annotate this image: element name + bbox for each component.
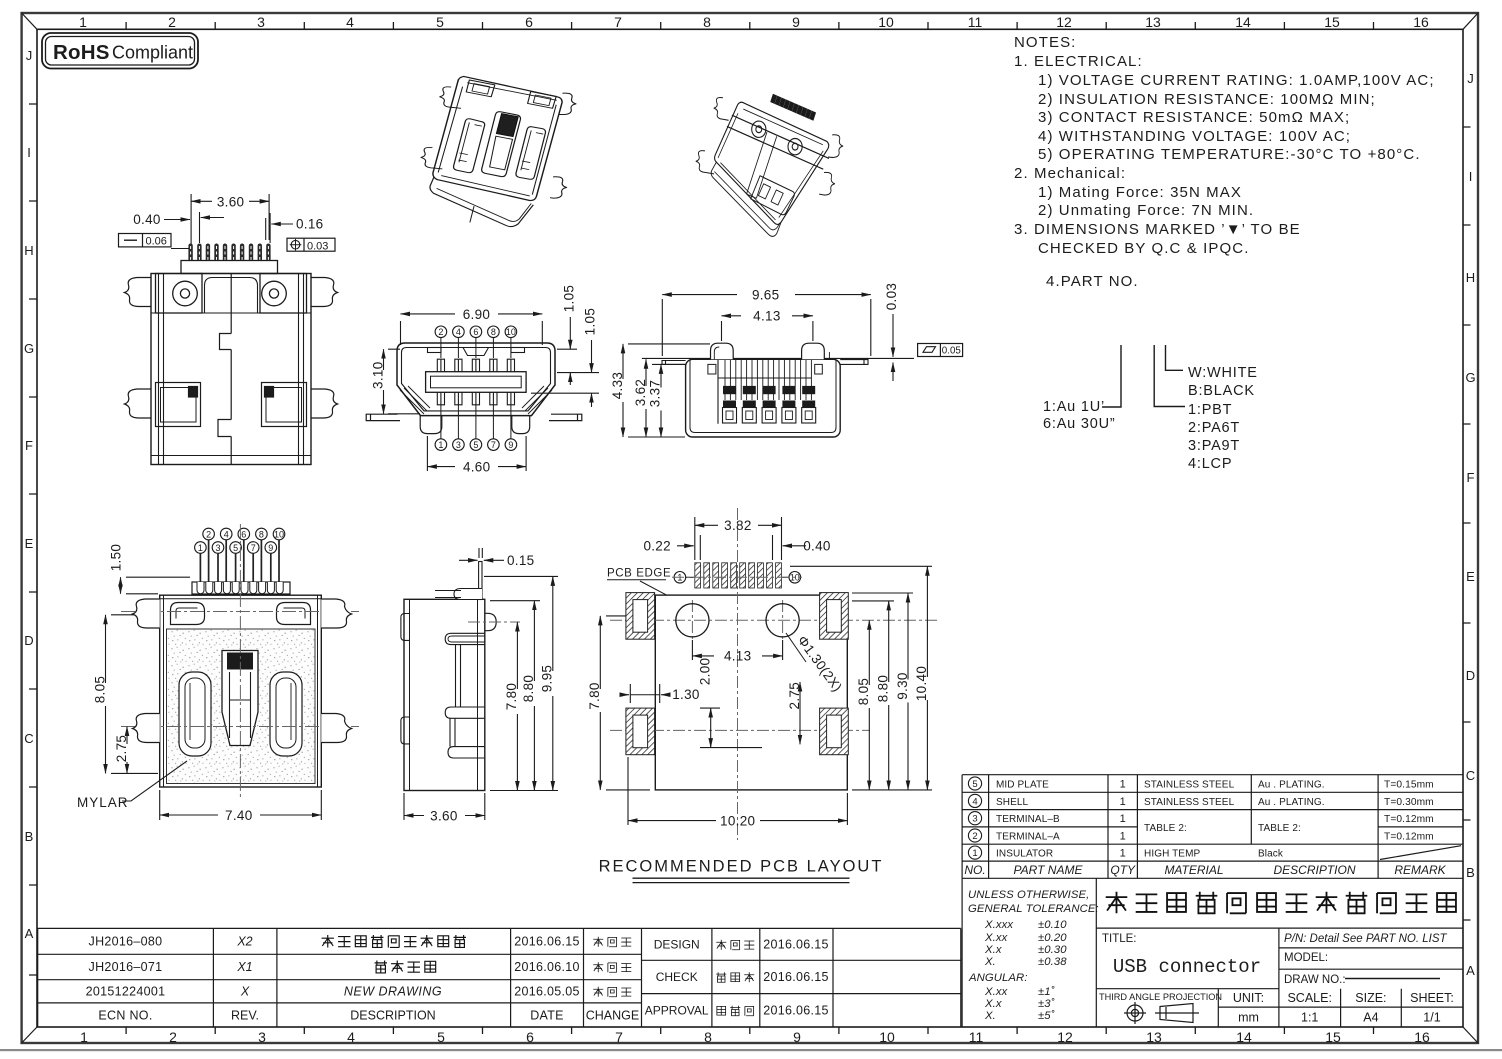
svg-text:F: F: [1467, 470, 1475, 485]
svg-text:X.: X.: [984, 956, 996, 968]
svg-text:11: 11: [968, 14, 983, 30]
svg-text:7: 7: [251, 543, 256, 553]
svg-text:14: 14: [1236, 1029, 1252, 1045]
svg-text:3.37: 3.37: [648, 380, 663, 407]
svg-text:SHELL: SHELL: [996, 797, 1029, 808]
svg-text:CHECKED BY Q.C & IPQC.: CHECKED BY Q.C & IPQC.: [1038, 240, 1249, 257]
svg-text:±0.30: ±0.30: [1038, 944, 1067, 956]
svg-text:MODEL:: MODEL:: [1284, 952, 1328, 964]
svg-text:JH2016–071: JH2016–071: [89, 960, 163, 974]
svg-text:16: 16: [1414, 1029, 1430, 1045]
svg-text:8: 8: [704, 1029, 712, 1045]
svg-text:1: 1: [1120, 848, 1126, 860]
svg-text:1: 1: [79, 14, 87, 30]
svg-text:15: 15: [1324, 14, 1340, 30]
svg-text:1: 1: [198, 543, 203, 553]
svg-text:5: 5: [437, 1029, 445, 1045]
svg-text:MATERIAL: MATERIAL: [1164, 863, 1223, 877]
svg-text:4.PART NO.: 4.PART NO.: [1046, 273, 1139, 290]
svg-text:±0.38: ±0.38: [1038, 956, 1067, 968]
svg-text:6: 6: [473, 327, 478, 337]
svg-text:5) OPERATING TEMPERATURE:-30°C: 5) OPERATING TEMPERATURE:-30°C TO +80°C.: [1038, 146, 1421, 163]
svg-text:A4: A4: [1363, 1011, 1378, 1025]
svg-text:0.03: 0.03: [884, 283, 899, 310]
svg-text:DRAW NO.:: DRAW NO.:: [1284, 974, 1346, 986]
svg-text:1/1: 1/1: [1423, 1011, 1440, 1025]
svg-text:J: J: [1467, 71, 1474, 86]
svg-text:2.00: 2.00: [698, 658, 713, 685]
svg-text:RoHS: RoHS: [53, 41, 110, 64]
svg-text:3: 3: [258, 1029, 266, 1045]
svg-text:I: I: [1469, 169, 1473, 184]
svg-text:±5˚: ±5˚: [1038, 1010, 1055, 1022]
svg-text:X2: X2: [236, 935, 252, 949]
svg-text:8: 8: [703, 14, 711, 30]
svg-text:F: F: [25, 438, 33, 453]
svg-text:T=0.12mm: T=0.12mm: [1384, 814, 1434, 825]
svg-text:1: 1: [1120, 813, 1126, 825]
svg-text:A: A: [1466, 963, 1475, 978]
svg-text:3:PA9T: 3:PA9T: [1188, 438, 1240, 454]
svg-text:10: 10: [878, 14, 894, 30]
svg-text:X.xx: X.xx: [984, 932, 1008, 944]
svg-text:SIZE:: SIZE:: [1355, 991, 1386, 1005]
svg-text:0.15: 0.15: [507, 553, 534, 568]
svg-text:X.xx: X.xx: [984, 986, 1008, 998]
svg-text:7: 7: [614, 14, 622, 30]
svg-text:A: A: [25, 926, 34, 941]
svg-text:USB connector: USB connector: [1113, 956, 1261, 978]
svg-text:Au . PLATING.: Au . PLATING.: [1258, 780, 1325, 791]
svg-text:J: J: [26, 48, 33, 63]
svg-text:4) WITHSTANDING VOLTAGE: 100V: 4) WITHSTANDING VOLTAGE: 100V AC;: [1038, 128, 1351, 145]
svg-text:2: 2: [206, 529, 211, 539]
svg-text:REMARK: REMARK: [1394, 863, 1446, 877]
svg-text:3: 3: [257, 14, 265, 30]
svg-text:1: 1: [438, 440, 443, 450]
svg-text:10: 10: [506, 327, 516, 337]
svg-text:X.x: X.x: [984, 944, 1002, 956]
svg-text:9: 9: [793, 1029, 801, 1045]
svg-text:DESIGN: DESIGN: [654, 938, 700, 952]
svg-text:1: 1: [1120, 779, 1126, 791]
svg-text:8.80: 8.80: [876, 675, 891, 702]
svg-text:0.03: 0.03: [307, 240, 328, 252]
svg-text:2: 2: [168, 14, 176, 30]
svg-text:TERMINAL–B: TERMINAL–B: [996, 814, 1060, 825]
svg-text:2) Unmating Force: 7N MIN.: 2) Unmating Force: 7N MIN.: [1038, 202, 1254, 219]
svg-text:GENERAL TOLERANCE:: GENERAL TOLERANCE:: [968, 903, 1099, 915]
svg-text:0.40: 0.40: [803, 538, 830, 553]
svg-text:X.xxx: X.xxx: [984, 919, 1013, 931]
svg-text:3) CONTACT RESISTANCE: 50mΩ MA: 3) CONTACT RESISTANCE: 50mΩ MAX;: [1038, 109, 1350, 126]
svg-text:ECN NO.: ECN NO.: [98, 1009, 152, 1023]
svg-text:10.20: 10.20: [720, 813, 755, 828]
svg-text:TITLE:: TITLE:: [1102, 933, 1137, 945]
svg-text:2) INSULATION RESISTANCE: 100M: 2) INSULATION RESISTANCE: 100MΩ MIN;: [1038, 91, 1376, 108]
svg-text:9.30: 9.30: [895, 672, 910, 699]
svg-text:3.60: 3.60: [430, 808, 457, 823]
svg-text:1:1: 1:1: [1301, 1011, 1318, 1025]
svg-text:NO.: NO.: [964, 863, 985, 877]
svg-text:3: 3: [215, 543, 220, 553]
svg-text:T=0.30mm: T=0.30mm: [1384, 797, 1434, 808]
svg-text:1.30: 1.30: [672, 687, 699, 702]
svg-text:THIRD ANGLE PROJECTION: THIRD ANGLE PROJECTION: [1099, 992, 1222, 1002]
svg-text:1.05: 1.05: [583, 308, 598, 335]
svg-text:1: 1: [1120, 796, 1126, 808]
svg-text:5: 5: [233, 543, 238, 553]
svg-text:4.60: 4.60: [463, 459, 490, 474]
svg-text:3: 3: [972, 814, 977, 825]
svg-text:X: X: [240, 985, 250, 999]
svg-text:4: 4: [346, 14, 354, 30]
svg-text:7.80: 7.80: [504, 683, 519, 710]
svg-text:APPROVAL: APPROVAL: [645, 1004, 709, 1018]
svg-text:8.05: 8.05: [856, 678, 871, 705]
svg-text:4: 4: [224, 529, 229, 539]
svg-text:0.40: 0.40: [133, 212, 160, 227]
svg-text:9: 9: [268, 543, 273, 553]
svg-text:4: 4: [347, 1029, 355, 1045]
svg-text:TERMINAL–A: TERMINAL–A: [996, 832, 1060, 843]
svg-text:2016.06.15: 2016.06.15: [514, 935, 580, 949]
svg-text:STAINLESS STEEL: STAINLESS STEEL: [1144, 797, 1235, 808]
svg-text:6: 6: [526, 1029, 534, 1045]
svg-text:1: 1: [972, 848, 977, 859]
svg-text:8.05: 8.05: [93, 676, 108, 703]
svg-text:2: 2: [169, 1029, 177, 1045]
svg-text:I: I: [27, 145, 31, 160]
svg-text:TABLE 2:: TABLE 2:: [1258, 823, 1301, 834]
svg-text:G: G: [1465, 370, 1475, 385]
svg-text:2016.06.15: 2016.06.15: [763, 970, 829, 984]
svg-text:D: D: [24, 633, 33, 648]
svg-text:12: 12: [1056, 14, 1072, 30]
svg-text:±3˚: ±3˚: [1038, 998, 1055, 1010]
svg-text:10: 10: [879, 1029, 895, 1045]
svg-text:B:BLACK: B:BLACK: [1188, 383, 1255, 399]
svg-text:5: 5: [972, 779, 977, 790]
svg-text:7.80: 7.80: [587, 682, 602, 709]
svg-text:1. ELECTRICAL:: 1. ELECTRICAL:: [1014, 53, 1143, 70]
svg-text:Compliant: Compliant: [112, 43, 193, 63]
svg-text:15: 15: [1325, 1029, 1341, 1045]
svg-text:PART NAME: PART NAME: [1014, 863, 1084, 877]
svg-text:4.13: 4.13: [724, 649, 751, 664]
svg-text:5: 5: [473, 440, 478, 450]
svg-text:B: B: [25, 829, 34, 844]
svg-text:2016.06.10: 2016.06.10: [514, 960, 580, 974]
svg-text:2016.06.15: 2016.06.15: [763, 1004, 829, 1018]
svg-text:7.40: 7.40: [225, 808, 252, 823]
svg-text:10: 10: [274, 529, 284, 539]
svg-text:6:Au 30U”: 6:Au 30U”: [1043, 416, 1116, 432]
svg-text:11: 11: [969, 1029, 984, 1045]
svg-text:0.22: 0.22: [643, 538, 670, 553]
svg-text:1:Au 1U’: 1:Au 1U’: [1043, 399, 1105, 415]
svg-text:NEW DRAWING: NEW DRAWING: [344, 985, 442, 999]
svg-text:SHEET:: SHEET:: [1410, 991, 1454, 1005]
svg-text:SCALE:: SCALE:: [1287, 991, 1331, 1005]
svg-text:8: 8: [259, 529, 264, 539]
svg-text:INSULATOR: INSULATOR: [996, 849, 1053, 860]
svg-text:HIGH TEMP: HIGH TEMP: [1144, 849, 1201, 860]
svg-text:DATE: DATE: [530, 1009, 564, 1023]
svg-text:DESCRIPTION: DESCRIPTION: [350, 1009, 435, 1023]
svg-text:1.05: 1.05: [561, 285, 576, 312]
svg-text:9: 9: [792, 14, 800, 30]
svg-text:W:WHITE: W:WHITE: [1188, 365, 1258, 381]
svg-text:8.80: 8.80: [521, 675, 536, 702]
svg-text:ANGULAR:: ANGULAR:: [968, 972, 1028, 984]
svg-text:4: 4: [972, 796, 977, 807]
svg-text:H: H: [24, 243, 33, 258]
svg-text:H: H: [1466, 270, 1475, 285]
svg-text:9.95: 9.95: [540, 665, 555, 692]
svg-text:3: 3: [456, 440, 461, 450]
svg-text:4: 4: [456, 327, 461, 337]
svg-text:STAINLESS STEEL: STAINLESS STEEL: [1144, 780, 1235, 791]
svg-text:2. Mechanical:: 2. Mechanical:: [1014, 165, 1126, 182]
svg-text:4:LCP: 4:LCP: [1188, 456, 1232, 472]
svg-text:±0.10: ±0.10: [1038, 919, 1067, 931]
svg-text:QTY: QTY: [1110, 863, 1136, 877]
svg-text:REV.: REV.: [231, 1009, 259, 1023]
svg-text:RECOMMENDED PCB LAYOUT: RECOMMENDED PCB LAYOUT: [599, 858, 884, 876]
svg-text:1: 1: [80, 1029, 88, 1045]
svg-text:13: 13: [1146, 1029, 1162, 1045]
svg-text:Au . PLATING.: Au . PLATING.: [1258, 797, 1325, 808]
svg-text:G: G: [24, 341, 34, 356]
svg-text:X.: X.: [984, 1010, 996, 1022]
svg-text:CHECK: CHECK: [656, 970, 698, 984]
svg-text:4.13: 4.13: [753, 309, 780, 324]
svg-text:0.06: 0.06: [146, 236, 167, 248]
svg-text:9: 9: [508, 440, 513, 450]
svg-text:3. DIMENSIONS MARKED ’▼’ TO BE: 3. DIMENSIONS MARKED ’▼’ TO BE: [1014, 221, 1301, 238]
svg-text:2.75: 2.75: [114, 735, 129, 762]
svg-text:8: 8: [491, 327, 496, 337]
svg-text:5: 5: [436, 14, 444, 30]
svg-text:1) VOLTAGE CURRENT RATING: 1.0: 1) VOLTAGE CURRENT RATING: 1.0AMP,100V A…: [1038, 72, 1435, 89]
svg-text:3.10: 3.10: [371, 361, 386, 388]
svg-text:9.65: 9.65: [752, 287, 779, 302]
svg-text:4.33: 4.33: [610, 372, 625, 399]
svg-text:14: 14: [1235, 14, 1251, 30]
svg-text:13: 13: [1145, 14, 1161, 30]
svg-text:2016.05.05: 2016.05.05: [514, 985, 580, 999]
svg-text:20151224001: 20151224001: [86, 985, 166, 999]
svg-text:X.x: X.x: [984, 998, 1002, 1010]
svg-text:D: D: [1466, 668, 1475, 683]
svg-text:P/N: Detail See PART NO. LIST: P/N: Detail See PART NO. LIST: [1284, 933, 1448, 945]
svg-text:DESCRIPTION: DESCRIPTION: [1273, 863, 1355, 877]
svg-text:T=0.15mm: T=0.15mm: [1384, 780, 1434, 791]
svg-text:16: 16: [1413, 14, 1429, 30]
svg-text:C: C: [1466, 768, 1475, 783]
svg-text:E: E: [25, 536, 34, 551]
svg-text:12: 12: [1057, 1029, 1073, 1045]
svg-text:MYLAR: MYLAR: [77, 795, 129, 810]
svg-text:2: 2: [972, 831, 977, 842]
svg-text:6: 6: [525, 14, 533, 30]
svg-text:1.50: 1.50: [109, 544, 124, 571]
svg-text:0.16: 0.16: [296, 217, 323, 232]
svg-text:6.90: 6.90: [463, 307, 490, 322]
svg-text:mm: mm: [1238, 1011, 1259, 1025]
svg-text:0.05: 0.05: [942, 346, 962, 357]
svg-text:1) Mating Force: 35N MAX: 1) Mating Force: 35N MAX: [1038, 184, 1242, 201]
svg-text:6: 6: [241, 529, 246, 539]
svg-text:T=0.12mm: T=0.12mm: [1384, 832, 1434, 843]
svg-text:1:PBT: 1:PBT: [1188, 402, 1232, 418]
svg-text:2: 2: [438, 327, 443, 337]
svg-text:2016.06.15: 2016.06.15: [763, 938, 829, 952]
svg-text:MID PLATE: MID PLATE: [996, 780, 1049, 791]
svg-text:7: 7: [615, 1029, 623, 1045]
svg-text:10.40: 10.40: [914, 666, 929, 701]
svg-text:B: B: [1466, 865, 1475, 880]
svg-text:3.62: 3.62: [633, 379, 648, 406]
svg-text:2.75: 2.75: [787, 682, 802, 709]
svg-text:±1˚: ±1˚: [1038, 986, 1055, 998]
svg-text:7: 7: [491, 440, 496, 450]
svg-text:NOTES:: NOTES:: [1014, 34, 1076, 51]
svg-text:3.60: 3.60: [217, 195, 244, 210]
svg-text:E: E: [1466, 569, 1475, 584]
svg-text:JH2016–080: JH2016–080: [89, 935, 163, 949]
svg-text:1: 1: [1120, 831, 1126, 843]
svg-text:TABLE 2:: TABLE 2:: [1144, 823, 1187, 834]
svg-text:2:PA6T: 2:PA6T: [1188, 420, 1240, 436]
svg-text:UNIT:: UNIT:: [1233, 991, 1264, 1005]
svg-text:CHANGE: CHANGE: [586, 1009, 639, 1023]
svg-text:C: C: [24, 731, 33, 746]
svg-text:UNLESS OTHERWISE,: UNLESS OTHERWISE,: [968, 889, 1089, 901]
svg-text:±0.20: ±0.20: [1038, 932, 1067, 944]
svg-text:PCB EDGE: PCB EDGE: [607, 568, 671, 580]
svg-text:X1: X1: [236, 960, 252, 974]
svg-text:Black: Black: [1258, 849, 1284, 860]
